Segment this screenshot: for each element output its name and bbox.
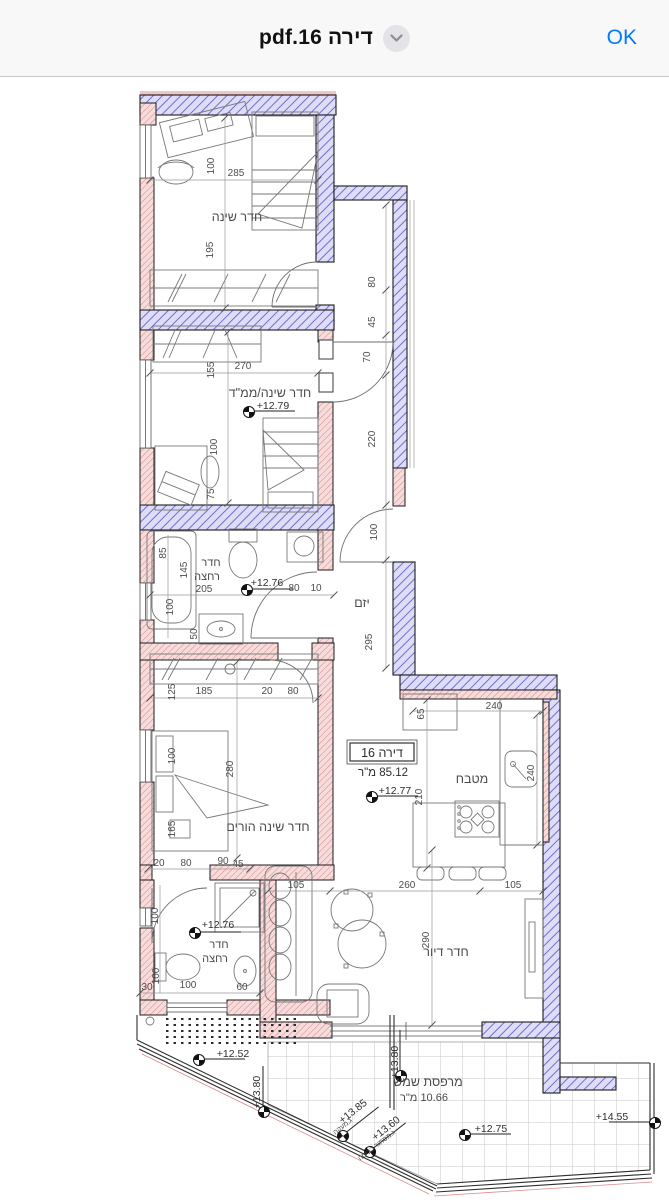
title-menu-button[interactable] [383, 25, 410, 52]
plan-label: 20 [261, 686, 273, 697]
plan-label: 100 [209, 438, 220, 455]
plan-label: 125 [167, 683, 178, 700]
plan-label: חדר שינה הורים [226, 820, 309, 834]
plan-label: 65 [416, 708, 427, 720]
plan-label: 210 [414, 788, 425, 805]
plan-label: +12.76 [202, 919, 235, 931]
plan-label: 100 [369, 523, 380, 540]
plan-label: 165 [167, 820, 178, 837]
plan-label: דירה 16 [361, 746, 403, 760]
plan-label: 155 [206, 361, 217, 378]
plan-label: 45 [232, 859, 244, 870]
plan-label: 105 [288, 880, 305, 891]
plan-label: 20 [153, 858, 165, 869]
plan-label: 105 [505, 880, 522, 891]
document-title-group[interactable]: pdf.16 דירה [259, 25, 410, 52]
plan-label: 80 [367, 276, 378, 288]
balcony-sliding-door [330, 1022, 482, 1040]
plan-label: 100 [180, 980, 197, 991]
document-title: pdf.16 דירה [259, 26, 373, 50]
plan-label: 30 [141, 982, 153, 993]
plan-label: 290 [421, 931, 432, 948]
plan-label: +13.80 [251, 1076, 263, 1109]
plan-label: 260 [399, 880, 416, 891]
preview-top-bar: pdf.16 דירה OK [0, 0, 669, 77]
plan-label: 100 [151, 967, 162, 984]
plan-label: חדר שינה [212, 210, 262, 224]
plan-label: 100 [150, 907, 161, 924]
plan-label: 10 [310, 583, 322, 594]
plan-label: 60 [236, 982, 248, 993]
plan-label: 270 [235, 361, 252, 372]
plan-label: 70 [362, 351, 373, 363]
plan-label: 185 [196, 686, 213, 697]
plan-label: רחצה [194, 571, 220, 583]
plan-label: מרפסת שמש [393, 1075, 462, 1089]
plan-label: 75 [206, 488, 217, 500]
plan-label: 280 [225, 760, 236, 777]
plan-label: 195 [205, 241, 216, 258]
plan-label: +14.55 [596, 1111, 629, 1123]
plan-label: +12.75 [475, 1123, 508, 1135]
plan-label: 80 [288, 583, 300, 594]
plan-label: חדר שינה/ממ"ד [229, 386, 311, 400]
floor-plan-svg: חדר שינהחדר שינה/ממ"דחדררחצהיזםמטבחחדר ש… [0, 77, 669, 1200]
plan-label: 285 [228, 168, 245, 179]
plan-label: 240 [526, 764, 537, 781]
plan-label: +13.80 [389, 1046, 401, 1079]
plan-label: מטבח [456, 772, 488, 786]
plan-label: 240 [486, 701, 503, 712]
chevron-down-icon [390, 34, 403, 42]
ok-button[interactable]: OK [601, 25, 643, 51]
plan-label: 295 [364, 633, 375, 650]
plan-label: 90 [217, 856, 229, 867]
plan-label: 205 [196, 584, 213, 595]
plan-label: 100 [167, 747, 178, 764]
pdf-page[interactable]: חדר שינהחדר שינה/ממ"דחדררחצהיזםמטבחחדר ש… [0, 77, 669, 1200]
plan-label: 100 [165, 598, 176, 615]
plan-label: 45 [367, 316, 378, 328]
plan-label: 145 [179, 561, 190, 578]
plan-label: +12.76 [251, 577, 284, 589]
plan-label: 220 [367, 430, 378, 447]
plan-label: +12.52 [217, 1048, 250, 1060]
plan-label: 50 [189, 628, 200, 640]
plan-label: 10.66 מ"ר [400, 1092, 448, 1104]
plan-label: 85.12 מ"ר [358, 767, 408, 779]
plan-label: רחצה [202, 953, 228, 965]
plan-label: יזם [354, 596, 370, 610]
plan-label: +12.77 [379, 785, 412, 797]
plan-label: 80 [180, 858, 192, 869]
plan-label: חדר [201, 557, 220, 569]
plan-label: חדר [209, 939, 228, 951]
plan-label: 80 [287, 686, 299, 697]
plan-label: 85 [158, 547, 169, 559]
plan-label: 100 [206, 157, 217, 174]
plan-label: +12.79 [257, 400, 290, 412]
